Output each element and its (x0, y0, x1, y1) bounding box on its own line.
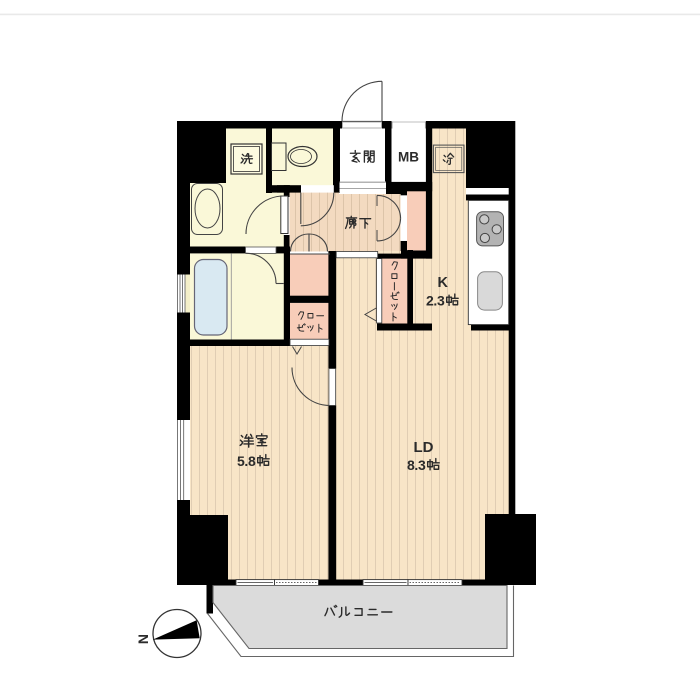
svg-text:5.8: 5.8 (237, 453, 256, 469)
svg-text:MB: MB (398, 150, 419, 165)
svg-text:K: K (437, 275, 448, 291)
svg-text:8.3: 8.3 (407, 457, 426, 473)
svg-text:LD: LD (414, 439, 434, 456)
svg-text:N: N (135, 634, 151, 644)
svg-text:2.3: 2.3 (426, 293, 445, 309)
